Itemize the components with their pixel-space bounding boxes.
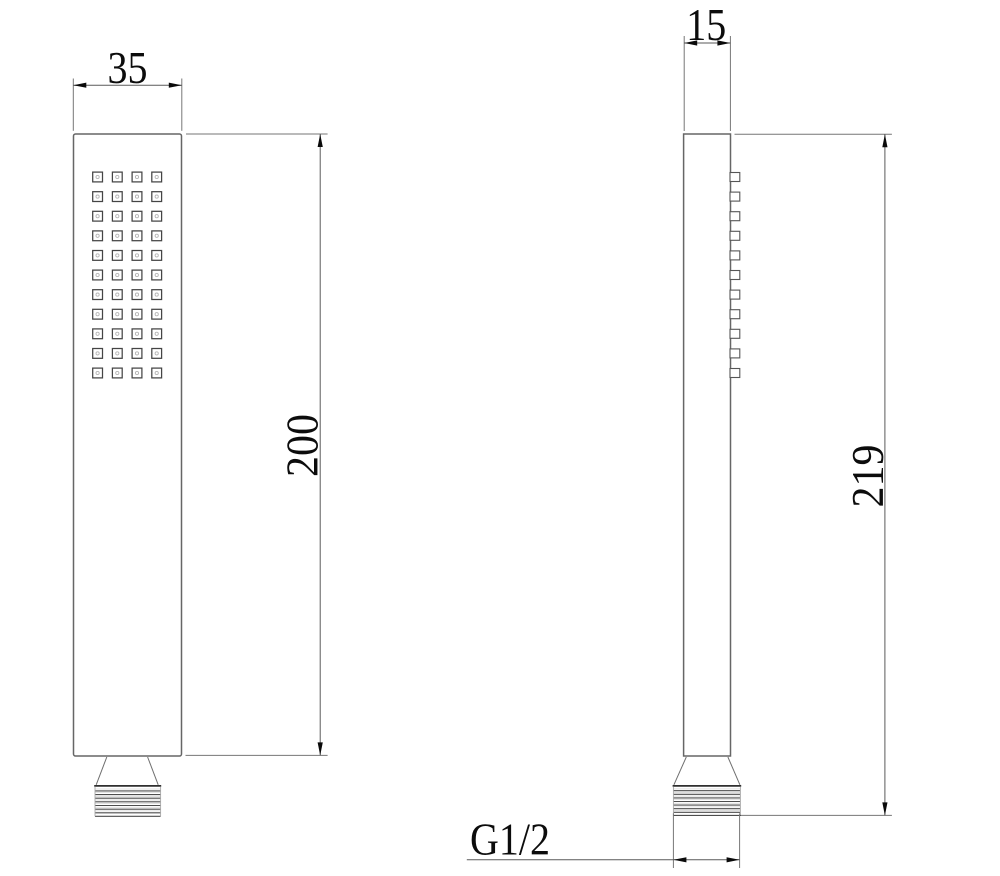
svg-text:15: 15 <box>686 0 726 50</box>
svg-text:219: 219 <box>843 445 893 508</box>
svg-text:G1/2: G1/2 <box>470 815 550 865</box>
svg-text:200: 200 <box>278 414 328 477</box>
svg-text:35: 35 <box>108 43 148 93</box>
